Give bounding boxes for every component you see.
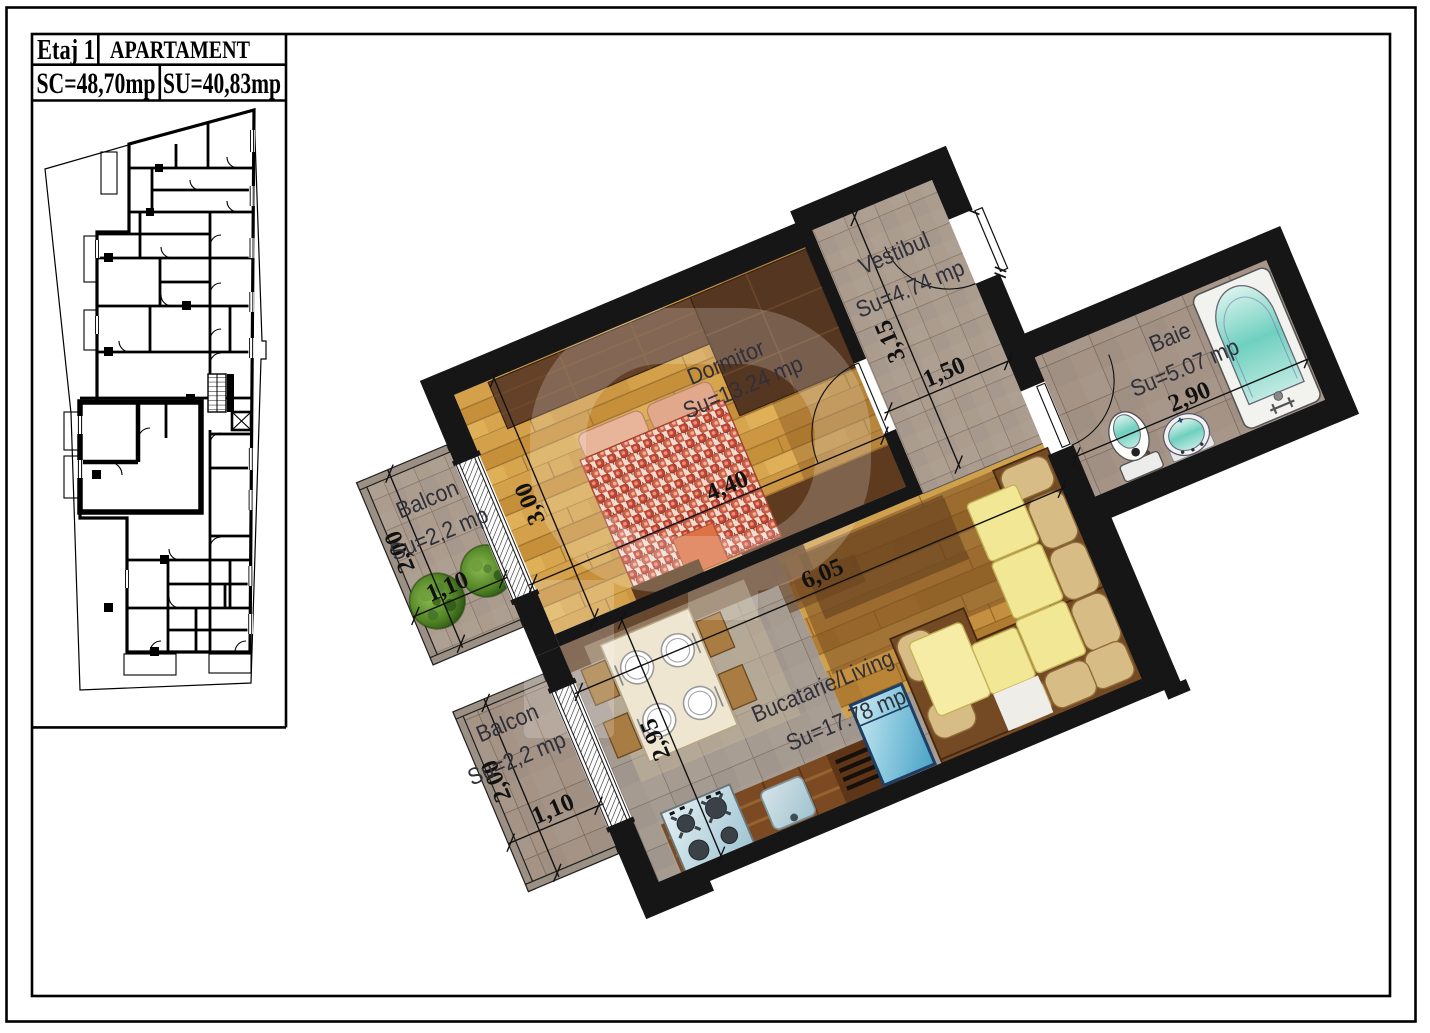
svg-text:Etaj 1: Etaj 1 (37, 35, 95, 66)
svg-text:SC=48,70mp: SC=48,70mp (37, 67, 156, 100)
svg-text:APARTAMENT: APARTAMENT (110, 37, 250, 64)
svg-text:SU=40,83mp: SU=40,83mp (163, 67, 281, 100)
